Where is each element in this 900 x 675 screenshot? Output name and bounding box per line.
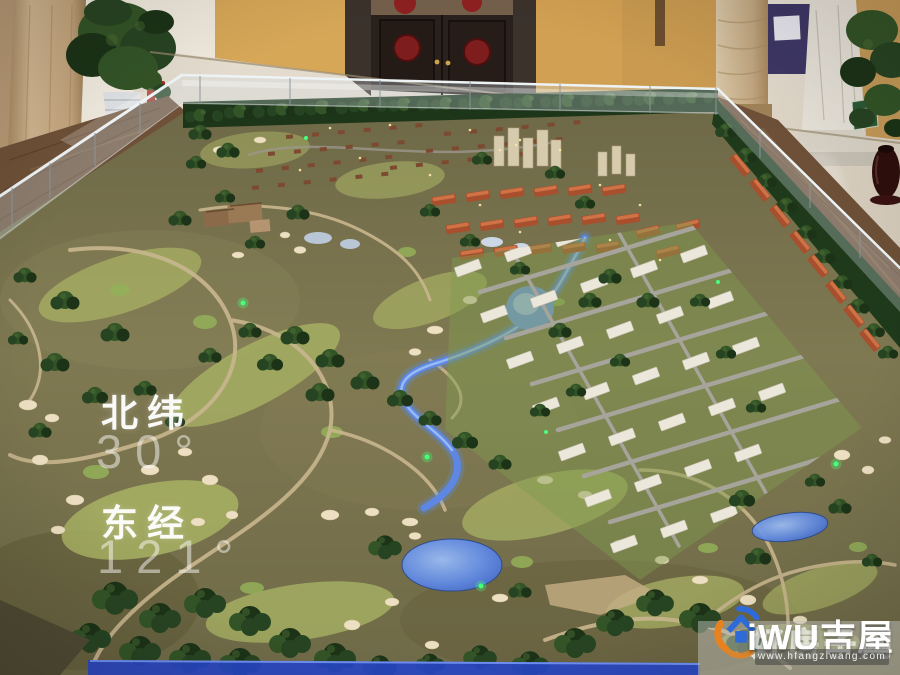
vignette <box>0 0 900 675</box>
scene <box>0 0 900 675</box>
lobby-model-photo: 北纬 30° 东经 121° 好房子网 iWU吉屋 www.hfangziwan… <box>0 0 900 675</box>
watermark-url: www.hfangziwang.com <box>755 649 889 665</box>
